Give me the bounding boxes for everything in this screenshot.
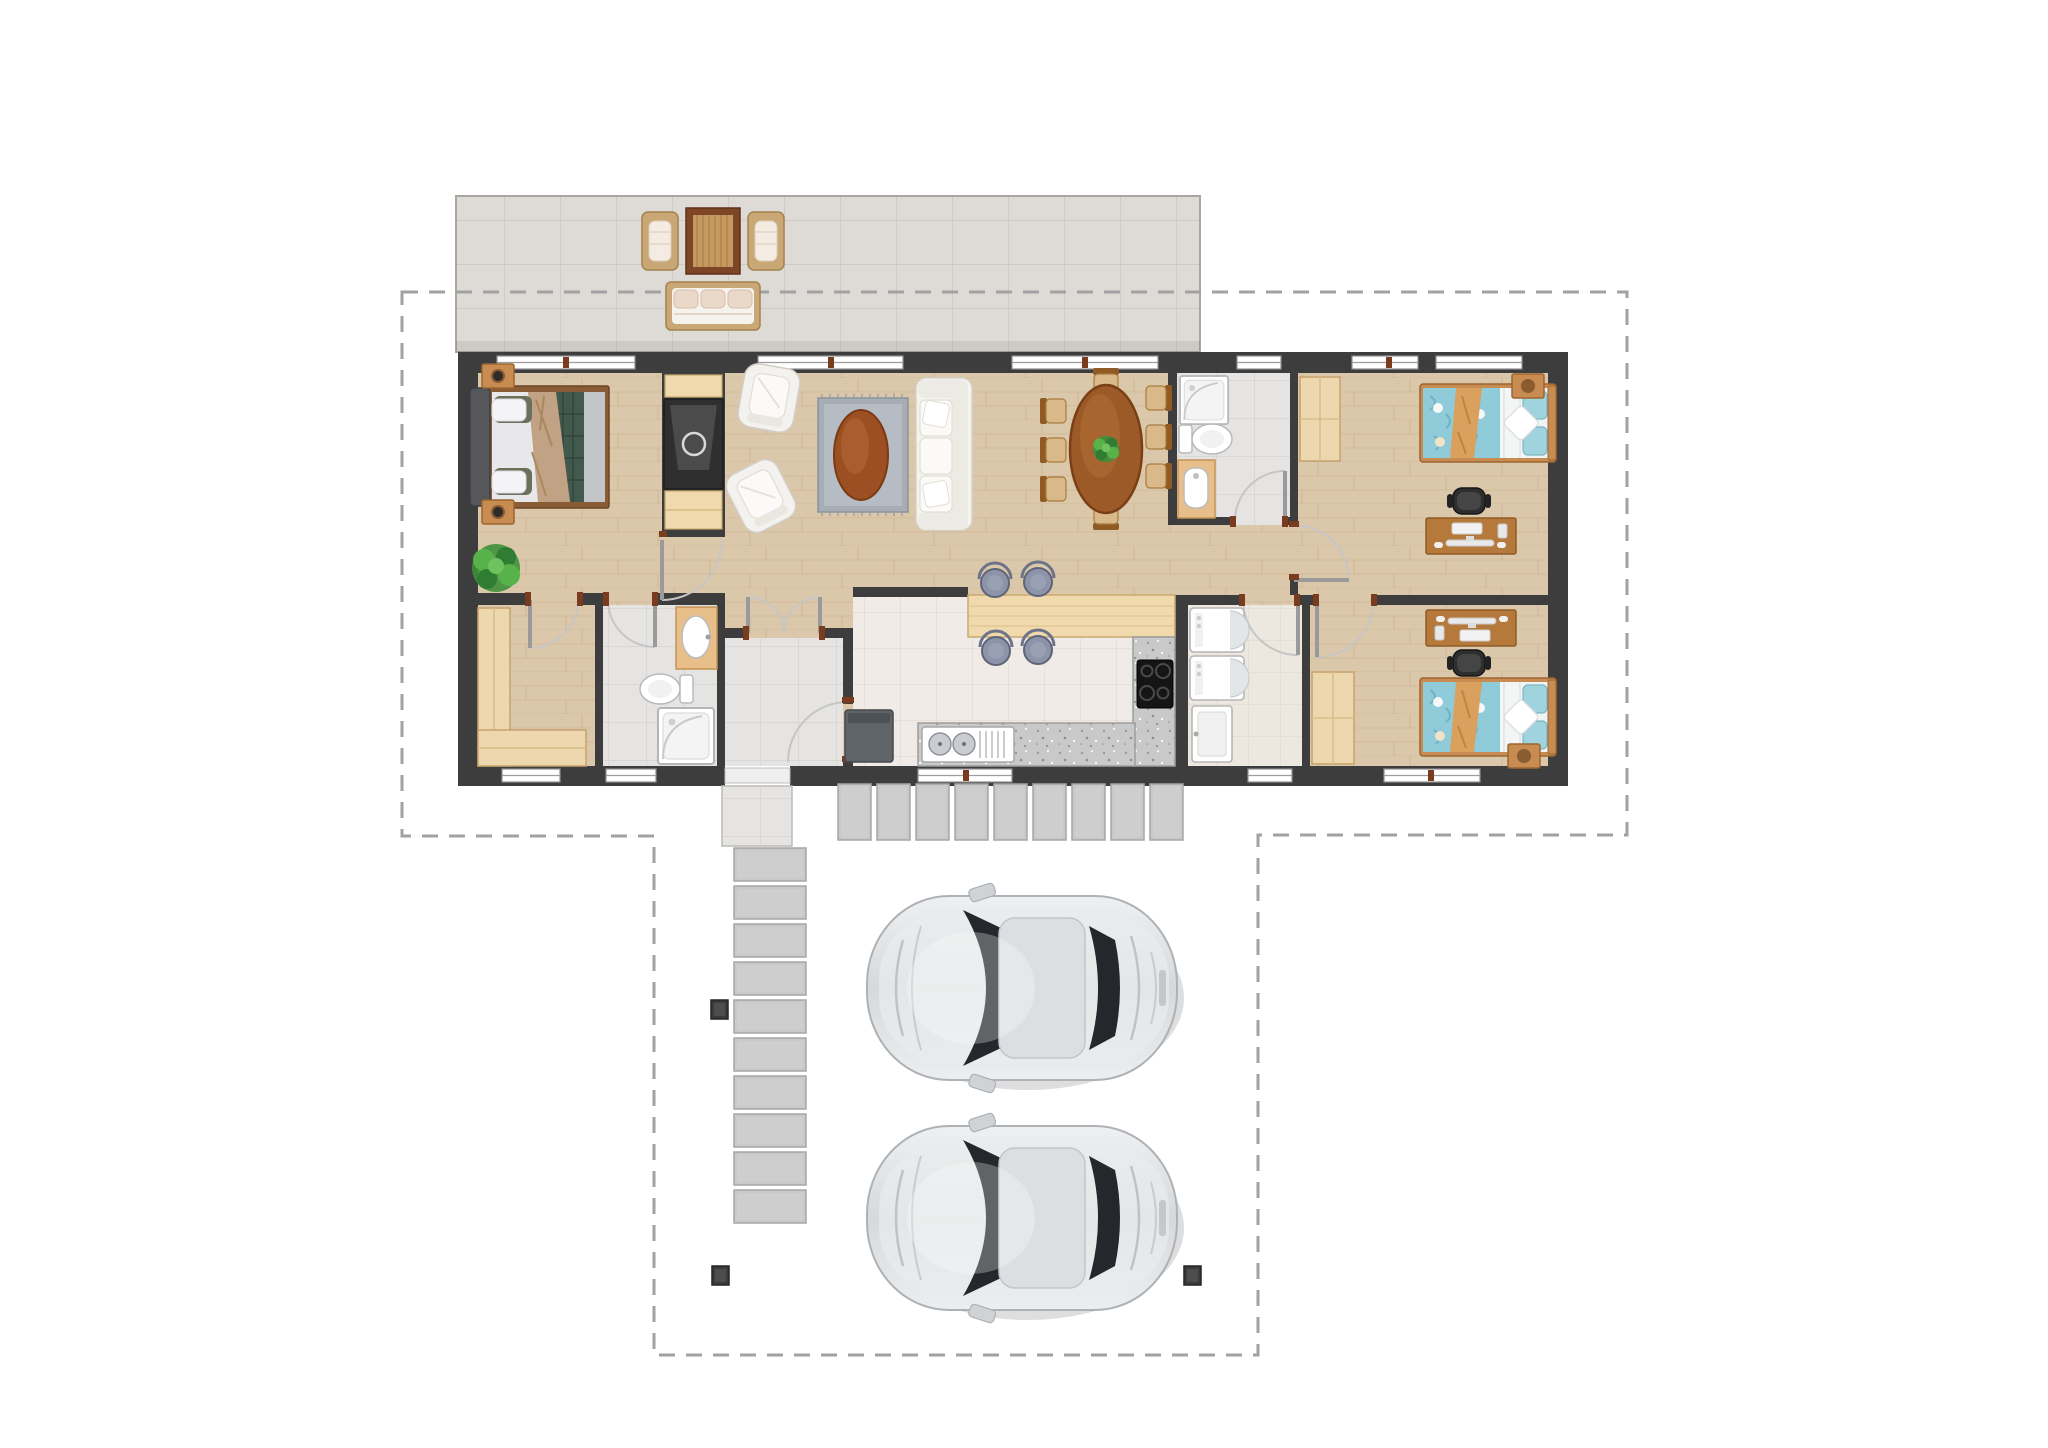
bath1-vanity: [676, 607, 717, 669]
entry-vestibule-floor: [725, 638, 843, 766]
dryer: [1190, 656, 1249, 700]
paver-path: [734, 848, 806, 1223]
master-bed: [470, 386, 609, 508]
wall-exterior-bottom-left: [458, 766, 725, 786]
paver-walkway: [838, 784, 1183, 840]
patio-armchair-right: [748, 212, 784, 270]
dining-chair: [1146, 463, 1172, 489]
dining-centerpiece-plant: [1093, 436, 1119, 462]
dining-chair: [1040, 476, 1066, 502]
bath1-shower: [658, 708, 714, 764]
trash-bin: [845, 710, 893, 762]
wall-closet-bath-divider: [595, 605, 603, 766]
wall-bath1-right: [717, 605, 725, 766]
living-armchair-1: [736, 362, 802, 435]
bath1-toilet: [640, 674, 693, 704]
patio-armchair-left: [642, 212, 678, 270]
entry-porch: [722, 786, 792, 846]
wall-master-bottom-a: [458, 593, 530, 605]
living-sofa: [916, 378, 972, 530]
car-2: [867, 1112, 1184, 1323]
floor-plan-canvas: [0, 0, 2048, 1448]
car-1: [867, 882, 1184, 1093]
entry-threshold: [725, 768, 790, 783]
master-nightstand-top: [482, 364, 514, 388]
dining-chair: [1040, 398, 1066, 424]
bedroom1-nightstand: [1512, 374, 1544, 398]
cooktop: [1137, 660, 1173, 708]
wall-kitchen-laundry-divider: [1175, 595, 1188, 766]
patio-sofa: [666, 282, 760, 330]
master-potted-plant: [472, 544, 520, 592]
dining-chair: [1146, 424, 1172, 450]
house-floors: [478, 373, 1548, 766]
bedroom2-desk: [1426, 610, 1516, 646]
carport-post: [1184, 1266, 1201, 1285]
bath2-bidet-vanity: [1178, 460, 1215, 518]
master-nightstand-bottom: [482, 500, 514, 524]
wall-laundry-top: [1188, 595, 1243, 605]
wall-kitchen-stub: [853, 587, 968, 597]
washer: [1190, 608, 1249, 652]
wall-bedroom2-left: [1302, 605, 1310, 766]
exterior: [711, 784, 1201, 1324]
dining-chair: [1040, 437, 1066, 463]
wall-bath2-right-a: [1290, 373, 1298, 525]
bar-stool: [1022, 630, 1054, 664]
bedroom1-wardrobe: [1300, 377, 1340, 461]
bath2-toilet: [1179, 424, 1232, 454]
bedroom2-nightstand: [1508, 744, 1540, 768]
patio-wall-shadow: [456, 341, 1200, 352]
patio-rug: [686, 208, 740, 274]
wall-bedrooms-divider-b: [1374, 595, 1568, 605]
bar-stool: [980, 631, 1012, 665]
patio: [456, 196, 1200, 352]
carport-post: [711, 1000, 728, 1019]
bar-stool: [979, 563, 1011, 597]
wall-bath2-right-b: [1290, 580, 1298, 595]
dining-chair: [1146, 385, 1172, 411]
bath2-shower: [1180, 376, 1228, 424]
bar-stool: [1022, 562, 1054, 596]
floor-plan-page: [0, 0, 2048, 1448]
wall-vestibule-right-a: [843, 628, 853, 704]
carport-post: [712, 1266, 729, 1285]
kitchen-sink: [922, 727, 1014, 762]
tv-cabinet-top: [665, 375, 722, 397]
laundry-sink: [1192, 706, 1232, 762]
living-coffee-table: [834, 410, 888, 500]
bedroom2-wardrobe: [1312, 672, 1354, 764]
bedroom1-desk: [1426, 518, 1516, 554]
patio-floor: [456, 196, 1200, 352]
